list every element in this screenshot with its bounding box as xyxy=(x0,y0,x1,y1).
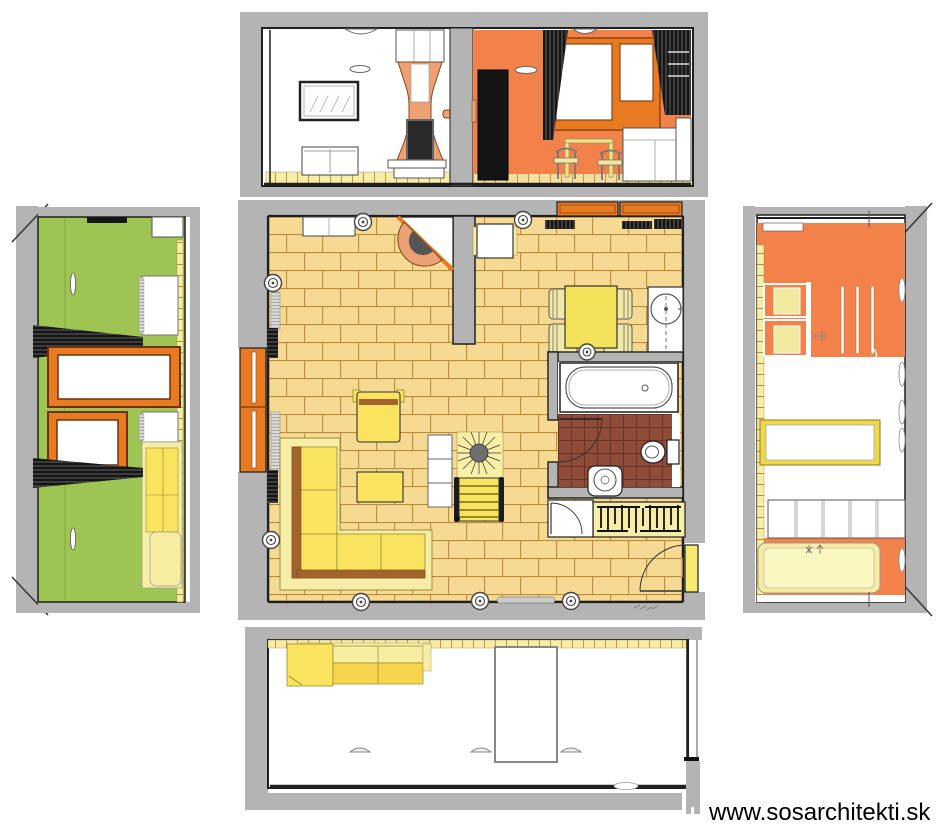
radiator xyxy=(139,276,178,335)
sideboard xyxy=(303,217,355,236)
window-large xyxy=(48,347,180,407)
curtain-icon xyxy=(267,328,278,358)
section-wall-left xyxy=(743,206,755,613)
threshold-radiator xyxy=(497,597,555,603)
coffee-table xyxy=(357,472,403,502)
deck-chair xyxy=(454,477,504,522)
curtain-icon xyxy=(545,220,575,229)
section-wall-top xyxy=(245,627,702,640)
curtain-icon xyxy=(654,219,683,229)
wall-east-lower xyxy=(683,592,705,620)
shelf xyxy=(763,223,803,231)
section-wall-left xyxy=(245,627,268,810)
west-elevation-view xyxy=(12,204,200,615)
open-door-top xyxy=(152,217,183,237)
table-edge xyxy=(806,282,811,357)
shelf-unit xyxy=(428,435,452,507)
drawing-svg: www.sosarchitekti.sk xyxy=(0,0,939,827)
washing-machine xyxy=(648,287,684,357)
wardrobe xyxy=(593,502,685,537)
picture-frame xyxy=(300,82,358,120)
section-wall-top xyxy=(38,207,198,217)
door-panel xyxy=(495,647,557,762)
wall-west-lower xyxy=(238,472,268,620)
kitchen-table xyxy=(473,224,517,258)
sideboard xyxy=(302,147,358,175)
east-elevation-view xyxy=(743,203,932,616)
section-wall-bottom xyxy=(240,186,708,197)
north-elevation-view xyxy=(240,12,708,197)
sofa-back xyxy=(287,643,431,686)
closet xyxy=(548,500,593,537)
section-wall-left xyxy=(16,206,38,613)
dining-table xyxy=(565,286,617,348)
bathtub xyxy=(560,363,678,412)
bottom-strip xyxy=(757,595,905,602)
washbasin xyxy=(588,466,622,496)
section-wall-right xyxy=(905,206,927,613)
bench xyxy=(758,543,880,593)
section-wall-bottom xyxy=(38,602,198,613)
radiator-strip xyxy=(271,412,280,472)
south-elevation-view xyxy=(245,627,702,814)
radiator-strip xyxy=(271,292,280,330)
bathroom-wall-west-upper xyxy=(548,352,558,420)
fridge-handle xyxy=(472,100,476,122)
wall-west-upper xyxy=(238,200,268,348)
mirror xyxy=(760,420,880,465)
section-wall-top xyxy=(240,12,708,28)
curtain-icon xyxy=(267,470,278,503)
toilet xyxy=(641,440,679,464)
curtain-icon xyxy=(622,221,652,229)
partition-section xyxy=(450,28,473,186)
floor-plan-view xyxy=(238,200,705,620)
radiator xyxy=(139,412,178,442)
door-handle-icon xyxy=(70,528,75,550)
fridge xyxy=(478,70,508,180)
lamp-lens xyxy=(614,783,638,790)
vent-strip xyxy=(87,217,127,223)
bathroom xyxy=(548,352,683,498)
section-wall-left xyxy=(240,12,262,197)
section-wall-bottom xyxy=(245,793,682,810)
bathroom-wall-north xyxy=(548,352,683,362)
wall-lamp-icon xyxy=(515,67,537,74)
armchair xyxy=(353,390,404,442)
watermark-text: www.sosarchitekti.sk xyxy=(708,799,931,826)
wall-south xyxy=(238,602,705,620)
section-wall-right xyxy=(693,12,708,197)
cabinet-row xyxy=(768,500,905,538)
wall-east-upper xyxy=(683,200,705,543)
section-wall-right xyxy=(190,207,200,613)
west-windows xyxy=(240,348,266,472)
sofa-side xyxy=(142,442,182,588)
wall-lamp-icon xyxy=(350,66,370,73)
door-handle-icon xyxy=(70,273,75,295)
section-wall-bottom xyxy=(755,602,905,613)
watering-can xyxy=(454,516,460,522)
door-edge xyxy=(684,640,700,814)
architectural-drawing: www.sosarchitekti.sk xyxy=(0,0,939,827)
plant xyxy=(457,432,503,479)
north-windows xyxy=(557,202,682,216)
partition-wall xyxy=(453,216,475,344)
